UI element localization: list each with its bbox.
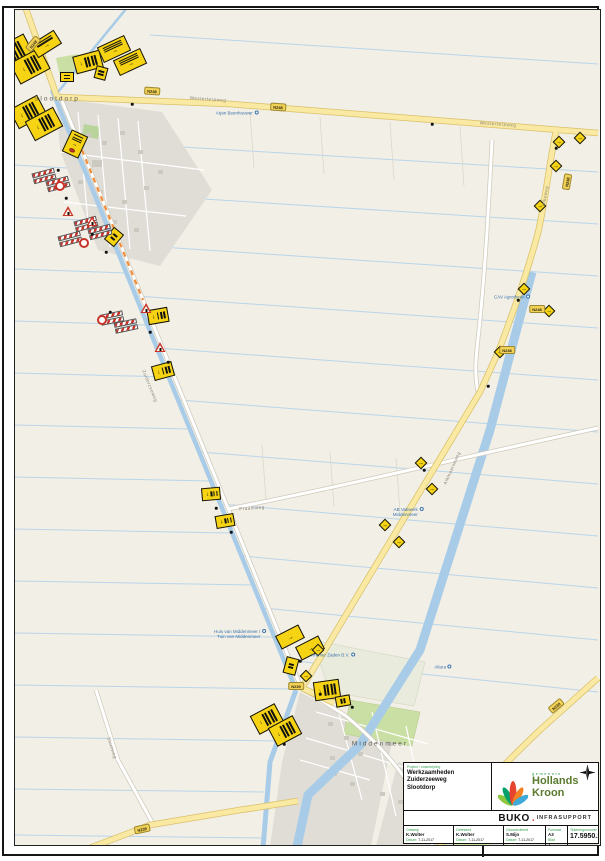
arrow-glyph: → (155, 369, 161, 376)
anchor-dot (57, 169, 60, 172)
project-description: Project / omschrijving Werkzaamheden Zui… (404, 763, 492, 810)
anchor-dot (105, 251, 108, 254)
road-label: Alkmaarseweg (442, 451, 461, 485)
field-gecontroleerd: Gecontroleerd S.Mijn Datum: 7-11-2017 (504, 826, 546, 846)
detour-diamond-sign: → (300, 670, 313, 683)
anchor-dot (555, 147, 558, 150)
drawing-number: 17.5950.1 (570, 832, 596, 841)
map-overlay: →→→→→→→→→→→→→→→→→→→→→→→→→→→→→→→N248N248N… (14, 9, 601, 846)
poi-pin-icon (254, 111, 258, 115)
detour-diamond-sign: → (379, 519, 392, 532)
roadworks-triangle-sign (141, 303, 152, 313)
arrow-glyph: → (303, 673, 309, 679)
poi-text: Altura (434, 665, 446, 670)
poi-text: Arjan Beenhouwer (216, 111, 253, 116)
road-closed-sign (97, 315, 107, 325)
arrow-glyph: → (396, 539, 402, 545)
field-date: Datum: 7-11-2017 (506, 838, 543, 843)
buko-suffix: INFRASUPPORT (537, 815, 592, 821)
poi-text: AB VakwerkMiddenmeer (393, 507, 418, 517)
arrow-glyph: → (418, 460, 424, 466)
road-label: Westerterpweg (190, 95, 227, 103)
anchor-dot (215, 507, 218, 510)
arrow-glyph: → (546, 308, 552, 314)
poi-pin-icon (419, 507, 423, 511)
title-block-fields: Ontwerp K.Wolter Datum: 7-11-2017 Geteke… (404, 826, 598, 846)
arrow-glyph: → (553, 163, 559, 169)
project-line-3: Slootdorp (407, 785, 488, 793)
anchor-dot (423, 469, 426, 472)
detour-board-sign (60, 72, 74, 82)
arrow-glyph: → (521, 286, 527, 292)
road-label: Slootweg (106, 737, 118, 760)
arrow-glyph: → (111, 48, 119, 55)
municipality-name-2: Kroon (532, 788, 578, 800)
detour-board-sign: → (146, 307, 169, 325)
road-closed-sign (79, 238, 89, 248)
poi-pin-icon (526, 295, 530, 299)
route-shield: N239 (288, 682, 304, 690)
road-label: Praamweg (239, 505, 265, 512)
anchor-dot (131, 103, 134, 106)
arrow-glyph: → (429, 486, 435, 492)
field-format: Formaat A3 Blad 1 (546, 826, 568, 846)
municipality-logo: gemeente Hollands Kroon (492, 763, 598, 810)
anchor-dot (167, 361, 170, 364)
detour-board-sign (335, 694, 352, 707)
project-line-1: Werkzaamheden (407, 770, 488, 778)
north-arrow-icon (580, 765, 595, 780)
fold-mark (482, 846, 484, 857)
detour-board-sign: → (151, 361, 175, 381)
poi-pin-icon (262, 629, 266, 633)
field-date: Datum: 7-11-2017 (456, 838, 501, 843)
anchor-dot (319, 693, 322, 696)
detour-board-sign: → (201, 487, 221, 502)
anchor-dot (299, 660, 302, 663)
arrow-glyph: → (78, 60, 84, 67)
anchor-dot (283, 743, 286, 746)
poi-label: Arjan Beenhouwer (216, 111, 259, 116)
road-label: Ulkeweg (541, 185, 550, 206)
field-date: Datum: 7-11-2017 (406, 838, 451, 843)
title-block: Project / omschrijving Werkzaamheden Zui… (403, 762, 599, 844)
road-closed-sign (55, 181, 65, 191)
detour-diamond-sign: → (393, 536, 406, 549)
arrow-glyph: → (43, 42, 51, 49)
detour-diamond-sign: → (415, 457, 428, 470)
detour-diamond-sign: → (426, 483, 439, 496)
route-shield: N239 (134, 823, 151, 834)
arrow-glyph: → (150, 313, 156, 320)
roadworks-triangle-sign (63, 206, 74, 216)
map-area: →→→→→→→→→→→→→→→→→→→→→→→→→→→→→→→N248N248N… (14, 9, 601, 846)
sheet-value: 1 (548, 842, 565, 846)
place-label: Middenmeer (352, 741, 408, 748)
arrow-glyph: → (577, 135, 583, 141)
route-shield: N248 (270, 102, 286, 111)
detour-diamond-sign: → (518, 283, 531, 296)
anchor-dot (109, 311, 112, 314)
poi-pin-icon (351, 653, 355, 657)
hollands-kroon-flower-icon (498, 779, 528, 809)
arrow-glyph: → (556, 139, 562, 145)
poi-label: Kramer Zaden B.V. (311, 653, 355, 658)
anchor-dot (487, 385, 490, 388)
arrow-glyph: → (382, 522, 388, 528)
detour-diamond-sign: → (550, 160, 563, 173)
route-shield: N248 (562, 174, 573, 191)
anchor-dot (65, 197, 68, 200)
poi-label: AB VakwerkMiddenmeer (393, 507, 424, 517)
arrow-glyph: → (287, 635, 295, 642)
route-shield: N248 (529, 305, 545, 313)
arrow-glyph: → (204, 491, 210, 497)
drawing-sheet: →→→→→→→→→→→→→→→→→→→→→→→→→→→→→→→N248N248N… (0, 0, 605, 861)
anchor-dot (91, 233, 94, 236)
poi-label: Altura (434, 665, 451, 670)
company-logo-row: BUKO. INFRASUPPORT (404, 811, 598, 826)
anchor-dot (431, 123, 434, 126)
poi-label: Huis van Middenmeer /Tuin van Middenmeer (214, 629, 266, 639)
detour-diamond-sign: → (574, 132, 587, 145)
anchor-dot (230, 531, 233, 534)
municipality-name-1: Hollands (532, 776, 578, 788)
poi-text: Kramer Zaden B.V. (311, 653, 349, 658)
detour-board-sign (283, 656, 300, 676)
detour-board-sign (94, 65, 109, 81)
road-label: Westerterpweg (480, 120, 517, 128)
project-line-2: Zuiderzeeweg (407, 777, 488, 785)
arrow-glyph: → (218, 518, 224, 525)
anchor-dot (149, 331, 152, 334)
poi-label: CAV Agrotheek (494, 295, 530, 300)
red-dot (68, 147, 75, 153)
poi-text: CAV Agrotheek (494, 295, 524, 300)
route-shield: N248 (144, 86, 160, 95)
place-label: Slootdorp (34, 96, 80, 103)
buko-logo: BUKO (498, 813, 529, 824)
field-getekend: Getekend K.Wolter Datum: 7-11-2017 (454, 826, 504, 846)
route-shield: N248 (499, 346, 515, 354)
buko-logo-dot: . (532, 813, 535, 824)
anchor-dot (351, 706, 354, 709)
poi-pin-icon (448, 665, 452, 669)
roadworks-triangle-sign (155, 342, 166, 352)
field-ontwerp: Ontwerp K.Wolter Datum: 7-11-2017 (404, 826, 454, 846)
detour-board-sign: → (62, 129, 88, 158)
field-drawing-number: Tekeningnummer 17.5950.1 (568, 826, 598, 846)
route-shield: N239 (547, 698, 564, 714)
detour-board-sign: → (215, 513, 236, 529)
poi-text: Huis van Middenmeer /Tuin van Middenmeer (214, 629, 260, 639)
arrow-glyph: → (127, 61, 135, 68)
